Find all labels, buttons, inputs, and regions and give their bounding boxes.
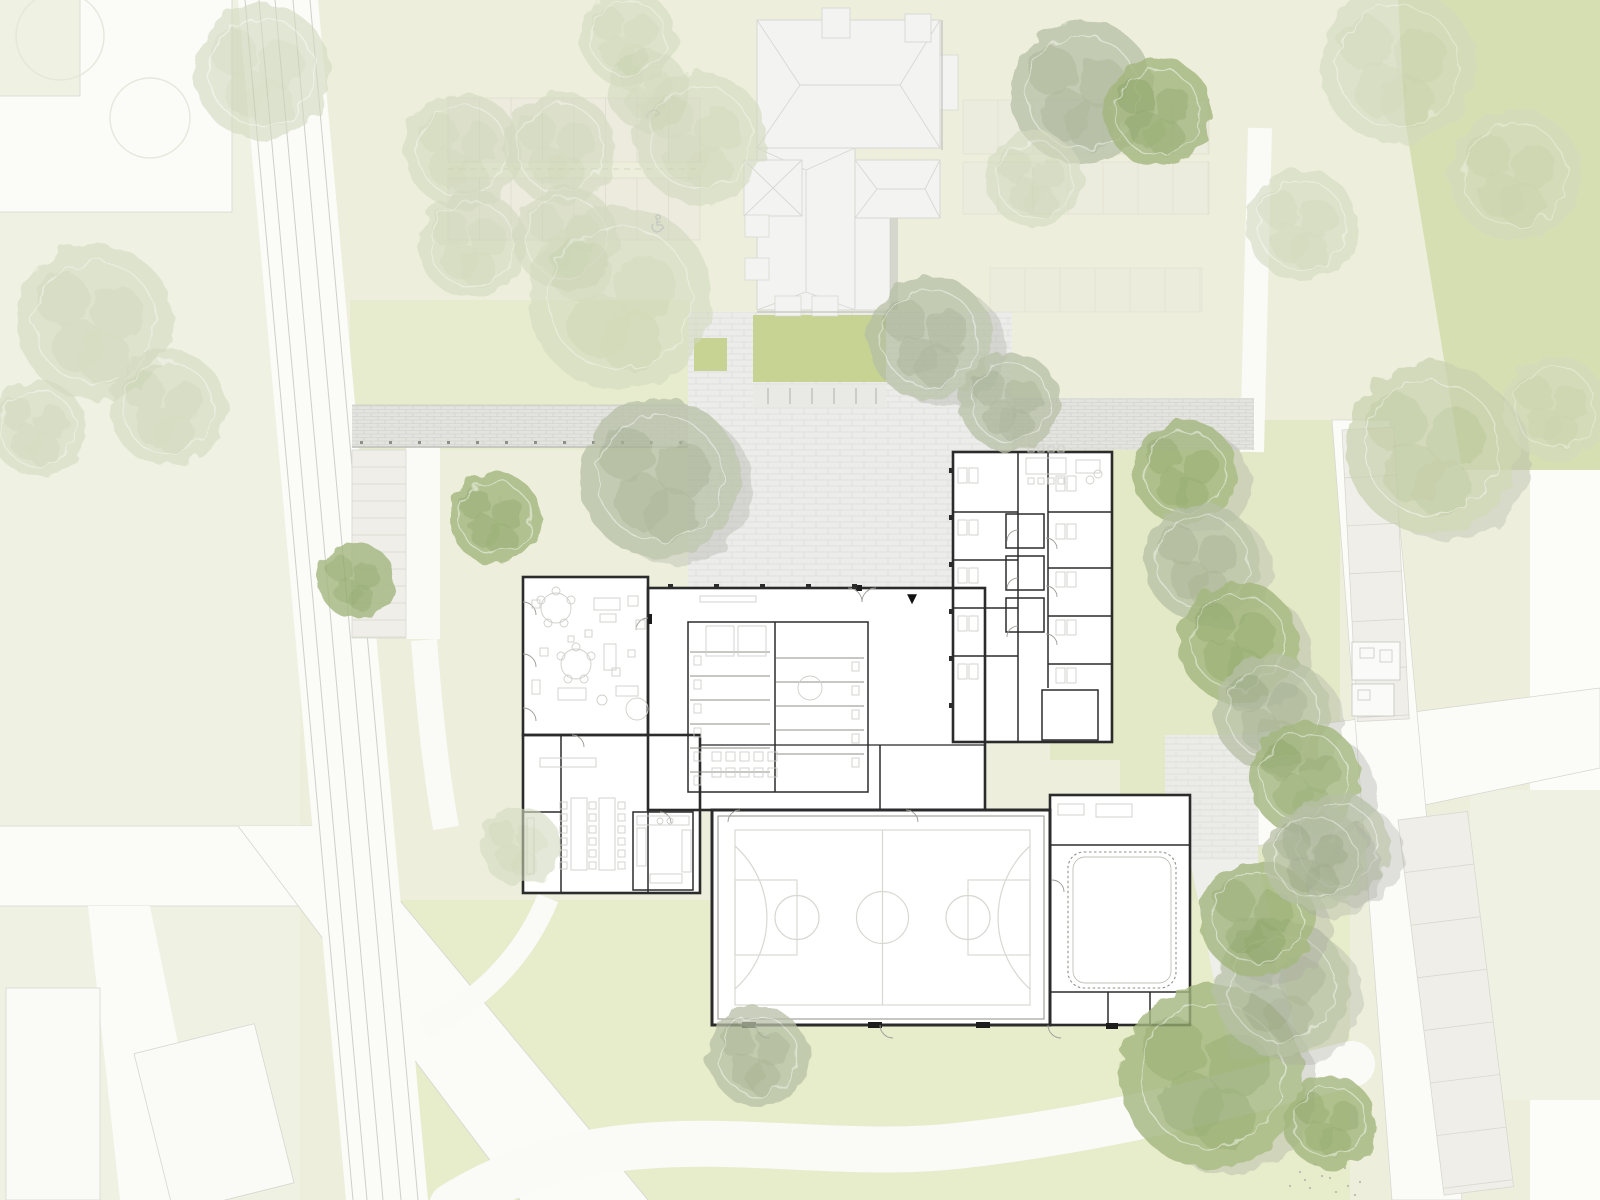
tree: [960, 352, 1060, 452]
column: [760, 584, 765, 589]
column: [668, 584, 673, 589]
column: [949, 703, 954, 708]
column: [563, 441, 566, 444]
tree: [318, 542, 394, 618]
column: [534, 441, 537, 444]
tree: [708, 1006, 808, 1106]
tree: [1284, 1076, 1376, 1168]
column: [852, 584, 857, 589]
tree: [449, 472, 541, 564]
tree: [404, 92, 520, 208]
column: [806, 584, 811, 589]
tree: [1104, 58, 1212, 166]
site-plan: ▼: [0, 0, 1600, 1200]
tree: [528, 206, 712, 390]
column: [949, 562, 954, 567]
tree: [634, 72, 766, 204]
tree: [1246, 169, 1358, 281]
tree: [418, 190, 526, 298]
tree: [110, 350, 226, 466]
column: [949, 609, 954, 614]
bench-row: [753, 385, 886, 407]
column: [389, 441, 392, 444]
column: [418, 441, 421, 444]
parking-stall-row: [990, 268, 1202, 312]
column: [949, 656, 954, 661]
tree: [1449, 109, 1581, 241]
tree: [987, 132, 1083, 228]
entrance-marker: ▼: [904, 589, 921, 608]
building-plot: [6, 988, 100, 1200]
west-drive: [406, 447, 440, 639]
column: [949, 468, 954, 473]
site-plan-canvas: ▼: [0, 0, 1600, 1200]
planted-square: [753, 315, 886, 382]
column: [360, 441, 363, 444]
tree: [480, 806, 560, 886]
column: [714, 584, 719, 589]
tree: [194, 4, 330, 140]
garden-shed: [1352, 642, 1400, 680]
column: [949, 515, 954, 520]
column: [505, 441, 508, 444]
column: [476, 441, 479, 444]
column: [447, 441, 450, 444]
